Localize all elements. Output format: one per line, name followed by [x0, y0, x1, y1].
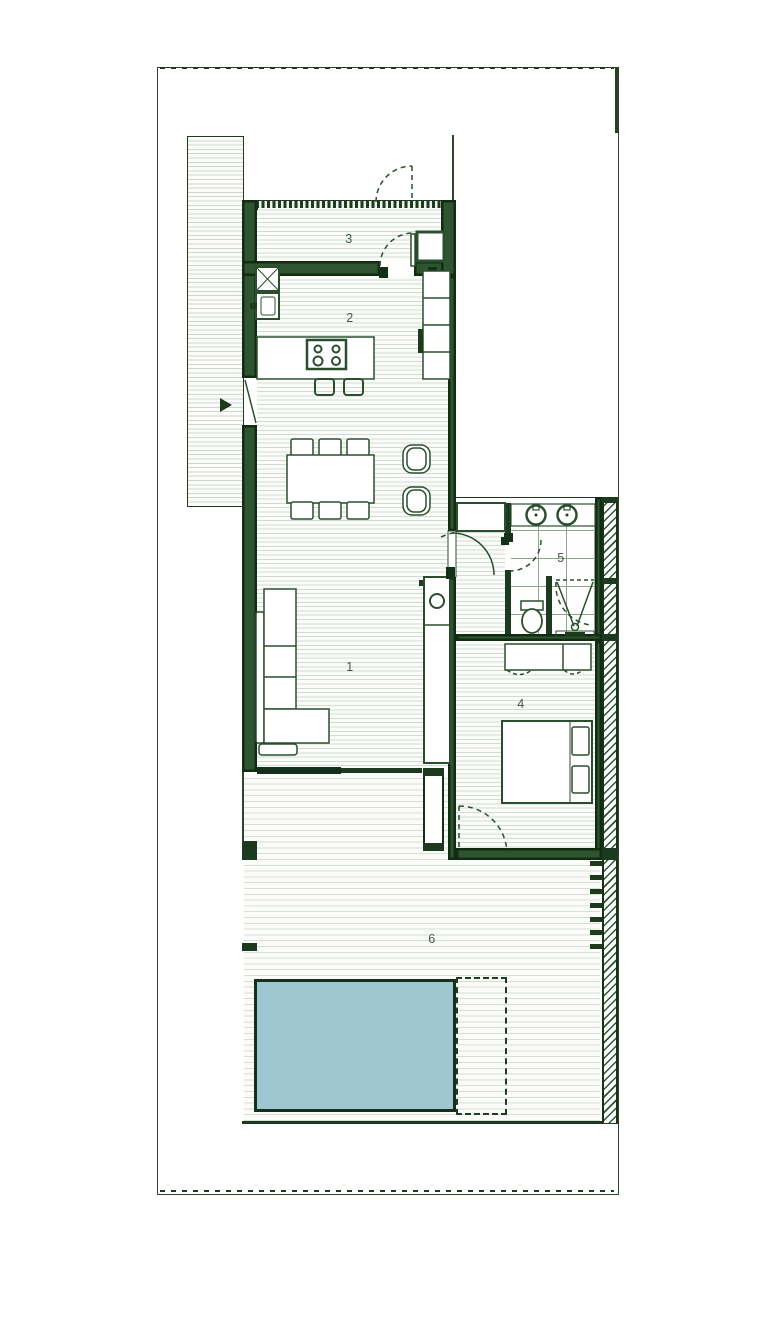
vanity: [511, 504, 595, 526]
bar-stool: [315, 379, 334, 395]
shower-drain: [565, 632, 585, 636]
tall-cabinets: [418, 271, 450, 379]
room-label-living: 1: [346, 660, 353, 674]
cooktop: [307, 340, 346, 369]
oven-marker: [418, 329, 423, 353]
room-label-bedroom: 4: [517, 697, 524, 711]
armchair: [403, 445, 430, 473]
room-label-kitchen: 2: [346, 311, 353, 325]
bed: [502, 721, 592, 803]
toilet: [521, 601, 543, 633]
bedroom-door: [459, 806, 507, 854]
dining-table: [287, 455, 374, 503]
corridor-door: [441, 530, 509, 579]
tv-wall: [419, 577, 450, 763]
sofa: [256, 589, 329, 755]
plan-linework: [0, 0, 768, 1344]
storage-closet: [417, 232, 444, 261]
kitchen-appliance-x: [256, 267, 279, 291]
entry-door-leaf: [245, 380, 256, 423]
room-label-bathroom: 5: [557, 551, 564, 565]
shower: [556, 580, 594, 637]
gate-door-swing: [376, 166, 412, 202]
dining-set: [287, 439, 374, 519]
armchair: [403, 487, 430, 515]
wardrobe: [505, 644, 591, 675]
kitchen-island: [257, 337, 374, 379]
bar-stool: [344, 379, 363, 395]
room-label-storage: 3: [345, 232, 352, 246]
kitchen-sink: [250, 293, 279, 319]
hall-closet: [457, 503, 505, 531]
entry-arrow-icon: [220, 398, 232, 412]
floor-plan: 1 2 3 4 5 6: [0, 0, 768, 1344]
terrace-side-ticks: [590, 861, 602, 949]
room-label-terrace: 6: [428, 932, 435, 946]
bathroom-door: [504, 533, 541, 571]
